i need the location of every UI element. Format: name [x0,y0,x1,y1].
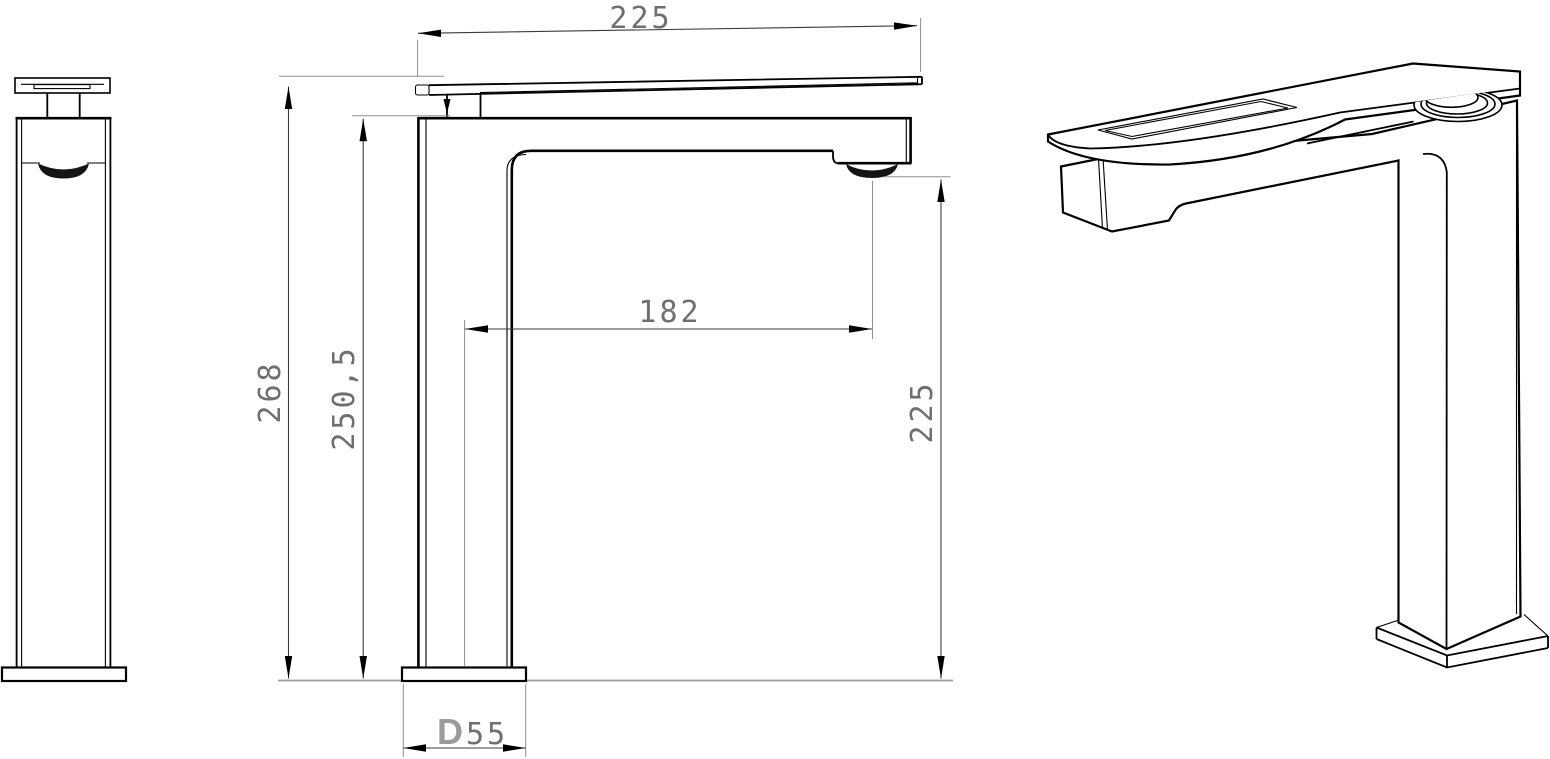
dim-overall-height-label: 268 [253,360,288,423]
side-base-plate [2,668,126,682]
dim-base-diameter-prefix: D [437,711,463,752]
dim-spout-reach-label: 182 [638,295,701,330]
dim-outlet-height-label: 225 [905,380,940,443]
front-view [402,77,922,681]
front-base-plate [402,668,526,682]
dim-base-diameter: D 55 [403,684,525,757]
front-spout-step [833,151,838,163]
side-cartridge-stem [47,93,79,117]
front-handle-tip [416,85,430,95]
iso-body [1061,101,1521,650]
technical-drawing-page: 225 268 250,5 182 [0,0,1550,759]
isometric-view [1048,64,1548,668]
dim-handle-width-label: 225 [609,1,672,36]
side-view [2,78,126,681]
dim-outlet-height: 225 [883,177,951,679]
dim-base-diameter-label: 55 [466,717,508,752]
faucet-technical-drawing: 225 268 250,5 182 [0,0,1550,759]
dim-spout-reach: 182 [465,181,873,666]
dim-spout-top-height-label: 250,5 [327,345,362,450]
side-aerator-outlet [38,164,89,179]
side-handle-plate [15,78,110,93]
front-aerator-outlet [846,164,898,178]
front-cartridge-stem [447,95,481,118]
dim-spout-top-height: 250,5 [327,116,450,679]
dimension-annotations: 225 268 250,5 182 [253,1,951,757]
dim-handle-width: 225 [418,1,921,76]
